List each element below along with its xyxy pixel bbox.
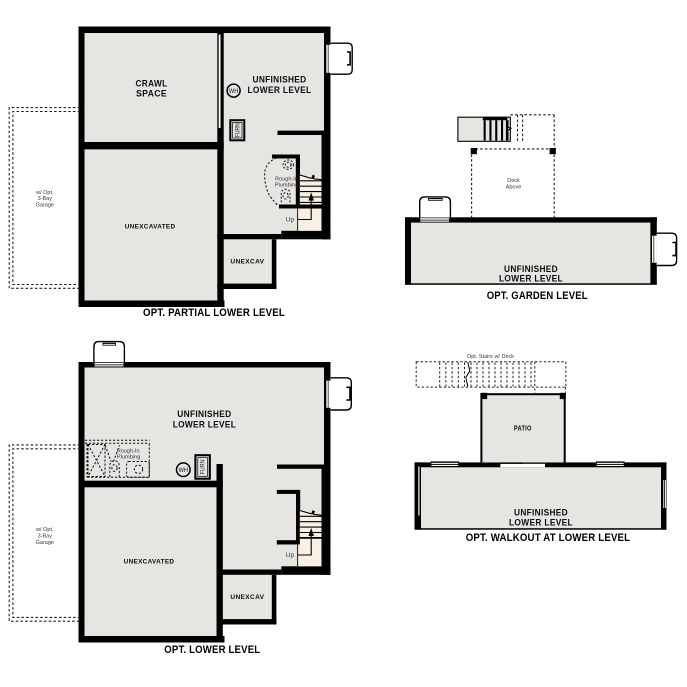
- svg-text:FURN: FURN: [201, 460, 207, 475]
- svg-text:w/ Opt.: w/ Opt.: [35, 527, 54, 533]
- svg-text:PATIO: PATIO: [514, 424, 532, 433]
- svg-text:UNEXCAV: UNEXCAV: [230, 594, 264, 601]
- svg-text:UNEXCAVATED: UNEXCAVATED: [124, 558, 175, 565]
- svg-text:WH: WH: [179, 467, 189, 474]
- svg-text:LOWER LEVEL: LOWER LEVEL: [509, 518, 573, 528]
- svg-text:Opt. Stairs w/ Deck: Opt. Stairs w/ Deck: [467, 354, 514, 360]
- svg-text:WH: WH: [229, 88, 239, 95]
- svg-text:LOWER LEVEL: LOWER LEVEL: [248, 85, 312, 95]
- svg-text:Up: Up: [286, 552, 295, 559]
- svg-text:Rough-In: Rough-In: [117, 448, 140, 454]
- svg-text:SPACE: SPACE: [136, 89, 167, 99]
- svg-text:OPT. LOWER LEVEL: OPT. LOWER LEVEL: [164, 644, 260, 656]
- svg-text:3-Bay: 3-Bay: [38, 196, 53, 202]
- svg-text:UNEXCAVATED: UNEXCAVATED: [125, 223, 176, 230]
- svg-text:Plumbing: Plumbing: [275, 182, 299, 188]
- svg-text:Garage: Garage: [36, 540, 54, 546]
- svg-text:Plumbing: Plumbing: [117, 455, 141, 461]
- svg-text:LOWER LEVEL: LOWER LEVEL: [173, 419, 236, 429]
- svg-text:Garage: Garage: [36, 203, 54, 209]
- svg-text:Above: Above: [506, 185, 522, 191]
- svg-text:3-Bay: 3-Bay: [38, 534, 53, 540]
- svg-text:LOWER LEVEL: LOWER LEVEL: [499, 274, 563, 284]
- svg-text:UNEXCAV: UNEXCAV: [230, 258, 264, 265]
- svg-text:UNFINISHED: UNFINISHED: [177, 409, 231, 419]
- svg-text:Deck: Deck: [507, 178, 520, 184]
- svg-text:OPT. PARTIAL LOWER LEVEL: OPT. PARTIAL LOWER LEVEL: [143, 307, 285, 319]
- svg-text:UNFINISHED: UNFINISHED: [514, 508, 568, 518]
- svg-text:OPT. GARDEN LEVEL: OPT. GARDEN LEVEL: [487, 290, 588, 302]
- svg-text:Up: Up: [286, 216, 295, 223]
- svg-text:CRAWL: CRAWL: [136, 79, 168, 89]
- svg-text:w/ Opt.: w/ Opt.: [35, 190, 54, 196]
- svg-text:OPT. WALKOUT AT LOWER LEVEL: OPT. WALKOUT AT LOWER LEVEL: [466, 532, 631, 544]
- svg-text:FURN: FURN: [235, 123, 241, 137]
- svg-text:UNFINISHED: UNFINISHED: [253, 75, 307, 85]
